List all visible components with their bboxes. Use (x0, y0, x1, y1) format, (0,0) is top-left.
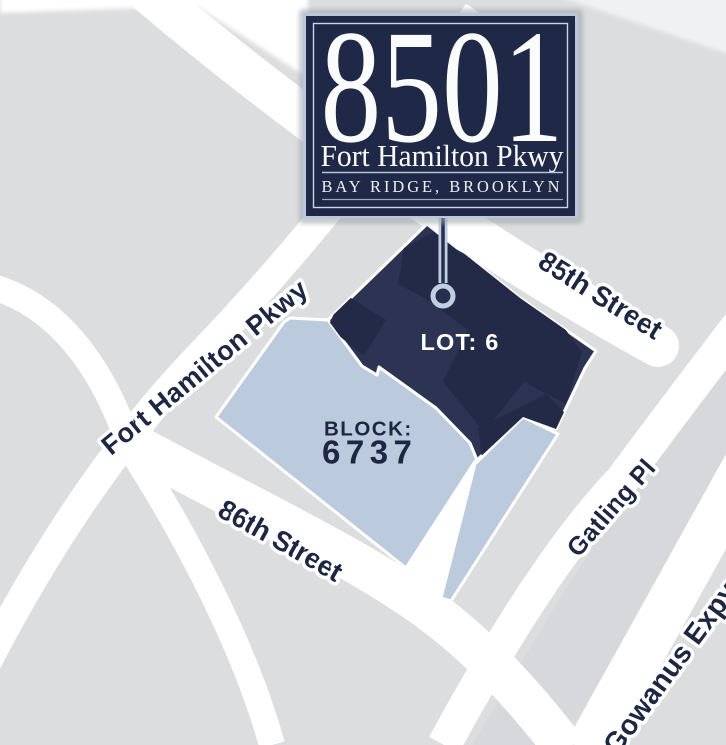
svg-text:BAY RIDGE, BROOKLYN: BAY RIDGE, BROOKLYN (322, 177, 563, 196)
svg-text:6737: 6737 (322, 434, 417, 471)
svg-text:Fort Hamilton Pkwy: Fort Hamilton Pkwy (321, 138, 564, 173)
svg-text:LOT: 6: LOT: 6 (420, 329, 499, 355)
